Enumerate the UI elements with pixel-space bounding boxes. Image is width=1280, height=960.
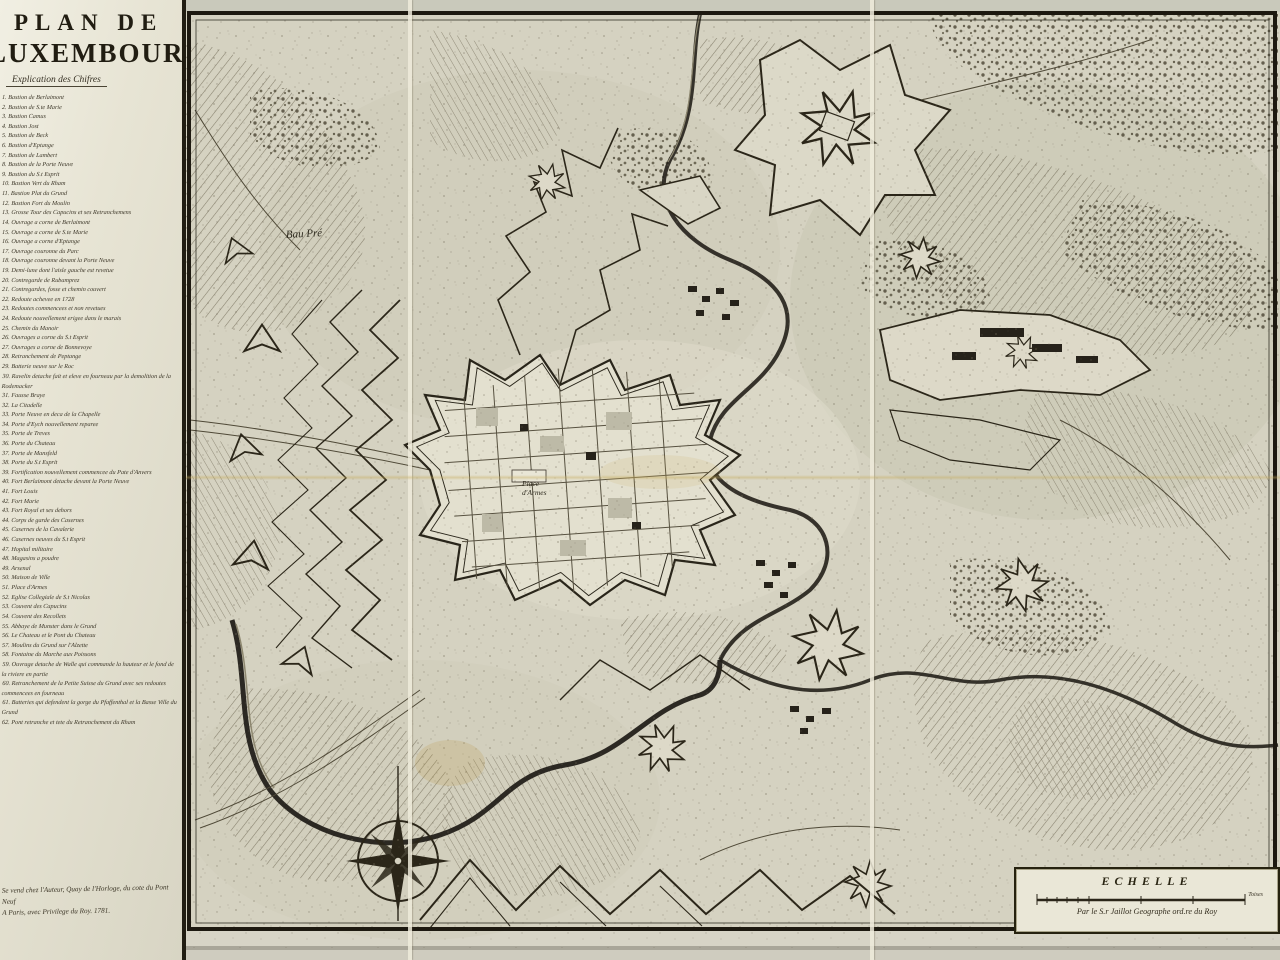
- legend-item: 54. Couvent des Recollets: [2, 612, 179, 622]
- scale-unit-label: Toises: [1248, 892, 1263, 898]
- legend-item: 55. Abbaye de Munster dans le Grund: [2, 622, 179, 632]
- scale-bar: Toises: [1035, 891, 1259, 906]
- legend-item: 21. Contregardes, fosse et chemin couver…: [2, 285, 179, 295]
- legend-item: 60. Retranchement de la Petite Suisse du…: [1, 679, 178, 698]
- legend-item: 40. Fort Berlaimont detache devant la Po…: [2, 477, 179, 487]
- legend-item: 22. Redoute achevee en 1728: [2, 295, 179, 305]
- scale-title: ECHELLE: [1016, 874, 1278, 889]
- legend-item: 56. Le Chateau et le Pont du Chateau: [2, 631, 179, 641]
- legend-item: 15. Ouvrage a corne de S.te Marie: [2, 228, 179, 238]
- legend-item: 25. Chemin du Manoir: [2, 324, 179, 334]
- sheet-top-margin: [182, 0, 1280, 12]
- legend-item: 32. La Citadelle: [2, 401, 179, 411]
- legend-item: 51. Place d'Armes: [2, 583, 179, 593]
- legend-item: 53. Couvent des Capucins: [2, 602, 179, 612]
- legend-item: 58. Fontaine du Marche aux Poissons: [2, 650, 179, 660]
- legend-item: 10. Bastion Vert du Rham: [2, 179, 179, 189]
- legend-item: 30. Ravelin detache fait et eleve en fou…: [1, 372, 178, 391]
- legend-item: 39. Fortification nouvellement commencee…: [2, 468, 179, 478]
- legend-item: 61. Batteries qui defendent la gorge du …: [1, 698, 178, 717]
- legend-item: 36. Porte du Chateau: [2, 439, 179, 449]
- legend-item: 12. Bastion Fort du Moulin: [2, 199, 179, 209]
- legend-item: 42. Fort Marie: [2, 497, 179, 507]
- legend-item: 17. Ouvrage couronne du Parc: [2, 247, 179, 257]
- scale-caption: Par le S.r Jaillot Geographe ord.re du R…: [1016, 907, 1278, 916]
- legend-item: 23. Redoutes commencees et non revetues: [2, 304, 179, 314]
- legend-item: 62. Pont retranche et tete du Retranchem…: [2, 718, 179, 728]
- imprint-line1: Se vend chez l'Auteur, Quay de l'Horloge…: [2, 882, 178, 907]
- map-title-line2: LUXEMBOURG: [0, 38, 182, 69]
- legend-item: 8. Bastion de la Porte Neuve: [2, 160, 179, 170]
- legend-item: 27. Ouvrages a corne de Bonnevoye: [2, 343, 179, 353]
- legend-item: 7. Bastion de Lambert: [2, 151, 179, 161]
- legend-item: 45. Casernes de la Cavalerie: [2, 525, 179, 535]
- legend-item: 59. Ouvrage detache de Walle qui command…: [1, 660, 178, 679]
- legend-item: 33. Porte Neuve en deca de la Chapelle: [2, 410, 179, 420]
- legend-item: 47. Hopital militaire: [2, 545, 179, 555]
- legend-item: 57. Moulins du Grund sur l'Alzette: [2, 641, 179, 651]
- legend-item: 20. Contregarde de Rubamprez: [2, 276, 179, 286]
- legend-panel: PLAN DE LUXEMBOURG Explication des Chifr…: [0, 0, 186, 960]
- legend-item: 19. Demi-lune dont l'aisle gauche est re…: [2, 266, 179, 276]
- imprint: Se vend chez l'Auteur, Quay de l'Horloge…: [2, 882, 179, 918]
- legend-list: 1. Bastion de Berlaimont2. Bastion de S.…: [2, 93, 178, 727]
- legend-item: 37. Porte de Mansfeld: [2, 449, 179, 459]
- legend-item: 35. Porte de Treves: [2, 429, 179, 439]
- vertical-fold-right: [870, 0, 874, 960]
- scale-bar-graphic: [1035, 891, 1259, 906]
- legend-item: 13. Grosse Tour des Capucins et ses Retr…: [2, 208, 179, 218]
- vertical-fold-left: [408, 0, 412, 960]
- legend-item: 4. Bastion Jost: [2, 122, 179, 132]
- legend-item: 52. Eglise Collegiale de S.t Nicolas: [2, 593, 179, 603]
- legend-item: 46. Casernes neuves du S.t Esprit: [2, 535, 179, 545]
- legend-item: 2. Bastion de S.te Marie: [2, 103, 179, 113]
- legend-item: 16. Ouvrage a corne d'Eptange: [2, 237, 179, 247]
- legend-item: 34. Porte d'Eych nouvellement reparee: [2, 420, 179, 430]
- horizontal-fold: [182, 475, 1280, 480]
- legend-item: 38. Porte du S.t Esprit: [2, 458, 179, 468]
- legend-item: 29. Batterie neuve sur le Roc: [2, 362, 179, 372]
- legend-item: 26. Ouvrages a corne du S.t Esprit: [2, 333, 179, 343]
- legend-item: 3. Bastion Camus: [2, 112, 179, 122]
- map-sheet: Bau Pré Place d'Armes PLAN DE LUXEMBOURG…: [0, 0, 1280, 960]
- legend-item: 18. Ouvrage couronne devant la Porte Neu…: [2, 256, 179, 266]
- legend-item: 6. Bastion d'Eptange: [2, 141, 179, 151]
- legend-item: 14. Ouvrage a corne de Berlaimont: [2, 218, 179, 228]
- legend-item: 28. Retranchement de Peptange: [2, 352, 179, 362]
- scale-cartouche: ECHELLE Toises Par le S.r Jaillot Geogra…: [1014, 867, 1280, 934]
- legend-item: 5. Bastion de Beck: [2, 131, 179, 141]
- legend-item: 50. Maison de Ville: [2, 573, 179, 583]
- legend-subtitle: Explication des Chifres: [6, 75, 107, 87]
- legend-item: 48. Magasins a poudre: [2, 554, 179, 564]
- legend-item: 11. Bastion Plat du Grund: [2, 189, 179, 199]
- legend-item: 43. Fort Royal et ses dehors: [2, 506, 179, 516]
- legend-item: 41. Fort Louis: [2, 487, 179, 497]
- map-canvas: Bau Pré Place d'Armes: [0, 0, 1280, 960]
- map-title-line1: PLAN DE: [14, 10, 182, 36]
- legend-item: 24. Redoute nouvellement erigee dans le …: [2, 314, 179, 324]
- legend-item: 1. Bastion de Berlaimont: [2, 93, 179, 103]
- legend-item: 44. Corps de garde des Casernes: [2, 516, 179, 526]
- legend-item: 31. Fausse Braye: [2, 391, 179, 401]
